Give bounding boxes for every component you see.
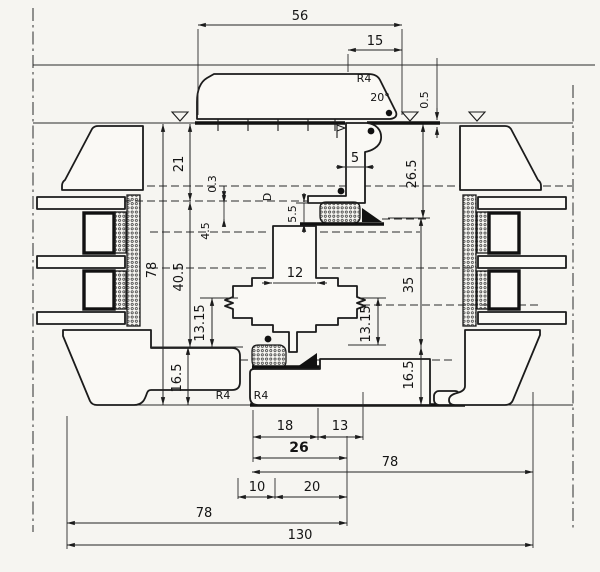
- dim-130: 130: [288, 528, 313, 543]
- dim-16-5-right: 16.5: [402, 361, 417, 390]
- dim-21: 21: [172, 156, 187, 173]
- surface-mark-icon: [469, 112, 485, 121]
- dim-78-bottom-left: 78: [196, 506, 213, 521]
- desiccant-strip: [477, 212, 488, 253]
- glass-pane: [37, 197, 125, 209]
- dim-10: 10: [249, 480, 266, 495]
- sash-top-arm-left: [62, 126, 143, 190]
- centre-hook-profile: [308, 123, 381, 203]
- dim-5-5: 5.5: [286, 205, 299, 223]
- dim-18: 18: [277, 419, 294, 434]
- label-bead-angle: 20°: [370, 91, 390, 104]
- gasket-top: [320, 202, 360, 223]
- desiccant-strip: [115, 212, 126, 253]
- edge-seal-strip: [463, 195, 476, 326]
- glass-pane: [37, 256, 125, 268]
- glass-pane: [478, 312, 566, 324]
- desiccant-strip: [115, 271, 126, 309]
- sash-bottom-arm-left: [63, 330, 240, 405]
- spacer-bar: [489, 271, 519, 309]
- glass-pane: [478, 197, 566, 209]
- dim-40-5: 40.5: [172, 263, 187, 292]
- label-r4-bottom-left: R4: [216, 389, 231, 402]
- label-bead-radius: R4: [357, 72, 372, 85]
- glazing-unit-left: [37, 195, 140, 326]
- edge-seal-strip: [127, 195, 140, 326]
- desiccant-strip: [477, 271, 488, 309]
- spacer-bar: [84, 213, 114, 253]
- dim-face-gap: 0.5: [418, 91, 431, 109]
- surface-mark-icon: [172, 112, 188, 121]
- gasket-lip: [362, 208, 382, 222]
- label-d: D: [261, 193, 274, 201]
- dim-26: 26: [289, 440, 308, 456]
- label-r4-bottom-centre: R4: [254, 389, 269, 402]
- pin-dot: [386, 110, 392, 116]
- pin-dot: [368, 128, 375, 135]
- pin-dot: [338, 188, 345, 195]
- dim-0-3: 0.3: [206, 175, 219, 193]
- surface-mark-icon: [402, 112, 418, 121]
- dim-26-5: 26.5: [405, 160, 420, 189]
- dim-13-15-right: 13.15: [359, 305, 374, 342]
- spacer-bar: [84, 271, 114, 309]
- dim-top-inset: 15: [367, 34, 384, 49]
- dim-4-5: 4.5: [199, 222, 212, 240]
- dim-12: 12: [287, 266, 304, 281]
- dim-78-left-vertical: 78: [145, 262, 160, 279]
- glass-pane: [478, 256, 566, 268]
- spacer-bar: [489, 213, 519, 253]
- dim-top-width: 56: [292, 9, 309, 24]
- dim-20: 20: [304, 480, 321, 495]
- glass-pane: [37, 312, 125, 324]
- dim-78-bottom-right: 78: [382, 455, 399, 470]
- dim-13-15-left: 13.15: [193, 304, 208, 341]
- datum-flag-icon: [337, 125, 345, 138]
- dim-35: 35: [402, 277, 417, 294]
- dim-5: 5: [351, 151, 359, 166]
- pin-dot: [265, 336, 272, 343]
- gasket-bottom: [252, 345, 286, 368]
- glazing-unit-right: [463, 195, 566, 326]
- sash-top-arm-right: [460, 126, 541, 190]
- dim-16-5-left: 16.5: [170, 364, 185, 393]
- gasket-bottom-lip: [297, 353, 317, 367]
- interlock-cross-profile: [225, 226, 365, 352]
- sash-bottom-arm-right: [449, 330, 540, 405]
- window-profile-section-drawing: 56 15 R4 20° 0.5 21 0.3 4.5 40.5 78 13.1…: [0, 0, 600, 572]
- dim-13: 13: [332, 419, 349, 434]
- technical-drawing-page: 56 15 R4 20° 0.5 21 0.3 4.5 40.5 78 13.1…: [0, 0, 600, 572]
